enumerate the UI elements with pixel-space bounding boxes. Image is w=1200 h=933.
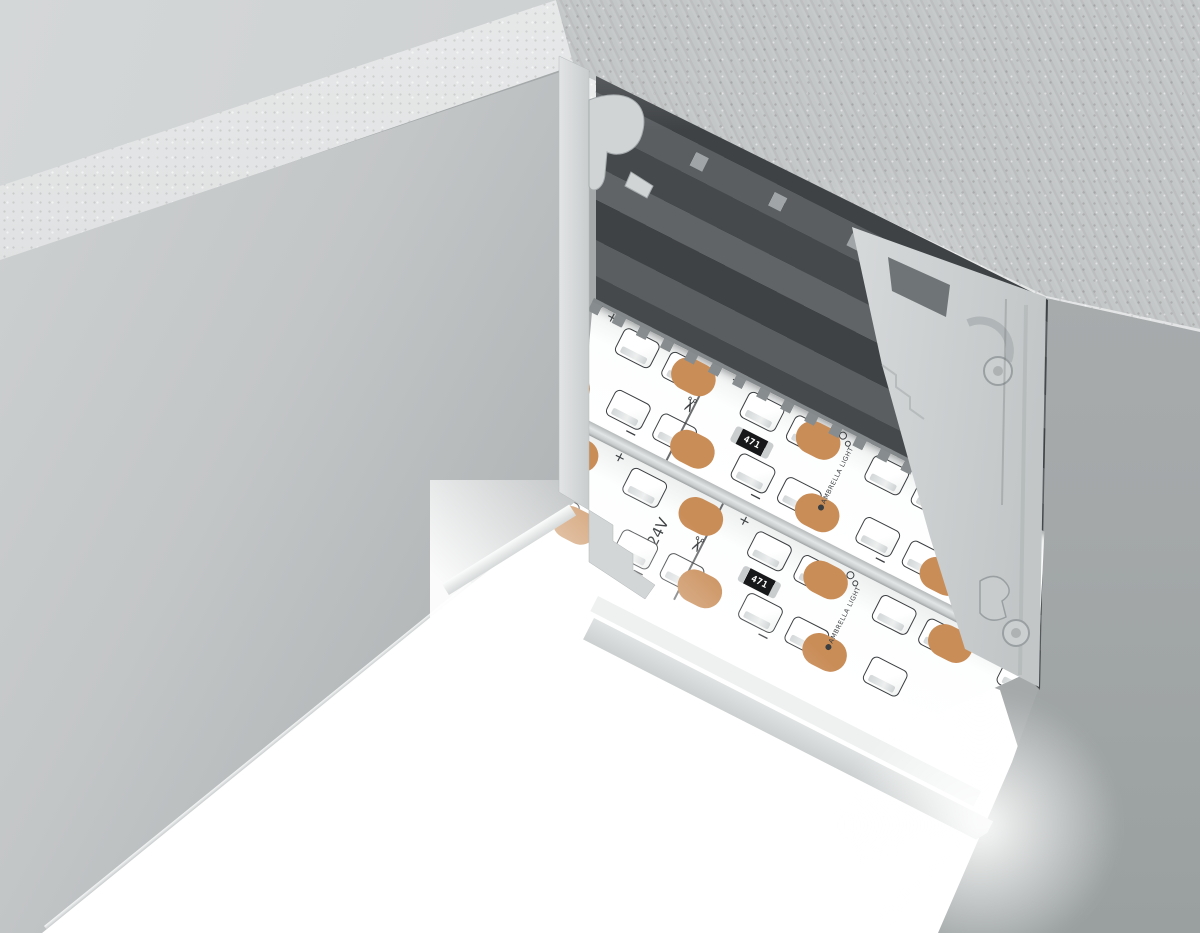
far-end-cut-face <box>830 205 1055 725</box>
led-footprint <box>745 529 794 573</box>
led-profile-render: + ✂ + − 471 <box>0 0 1200 933</box>
near-end-cut-face <box>545 42 715 722</box>
resistor-value-label: 471 <box>742 434 762 451</box>
tooth-steps <box>589 510 655 599</box>
glow-bloom <box>840 690 1120 933</box>
clip-hook <box>980 576 1009 620</box>
